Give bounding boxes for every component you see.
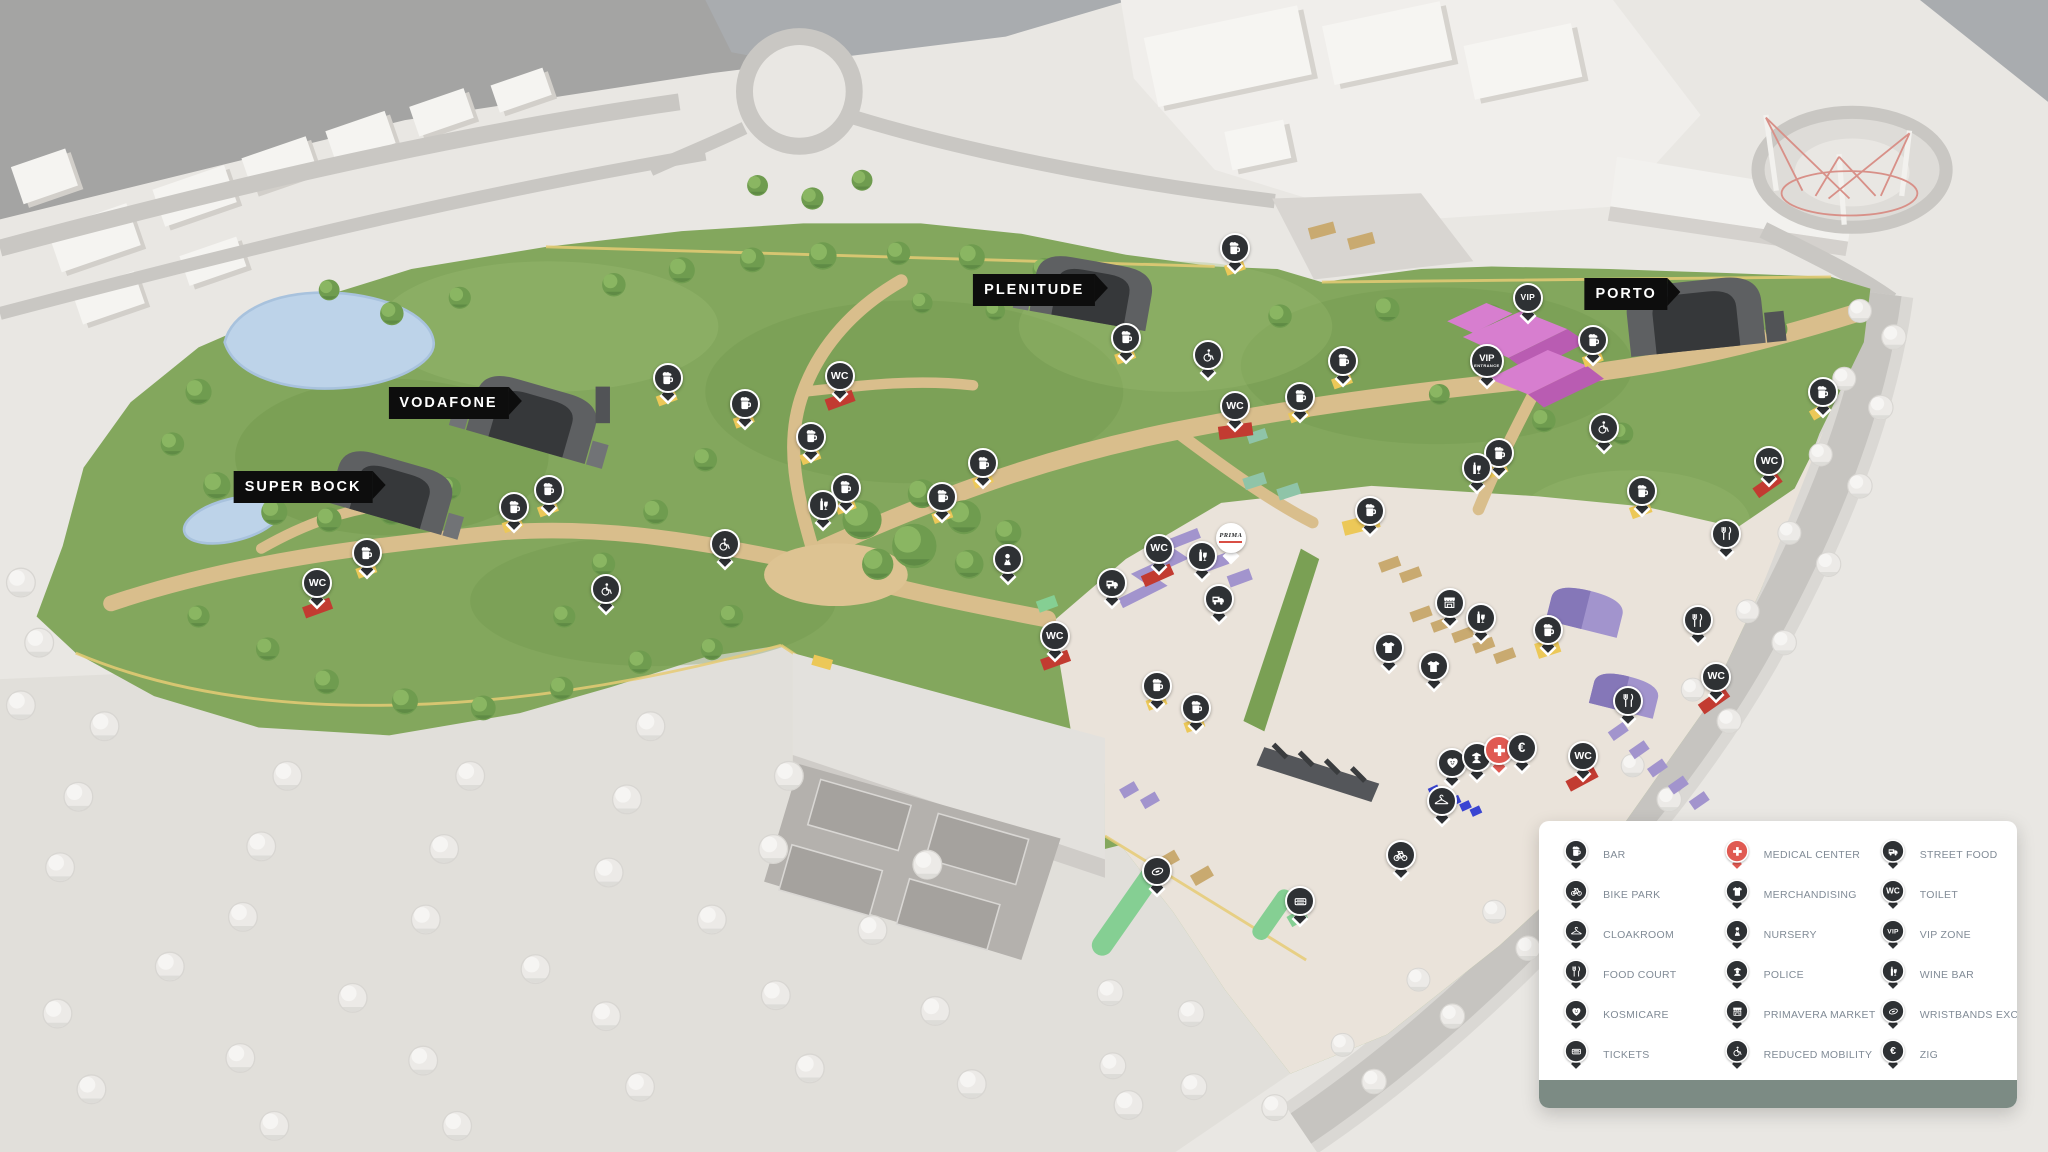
wristbands-exchange-icon xyxy=(1886,1004,1899,1017)
legend-item-label: KOSMICARE xyxy=(1603,1009,1669,1021)
legend-item-street-food: STREET FOOD xyxy=(1878,835,2007,875)
legend-item-bike-park: BIKE PARK xyxy=(1561,875,1722,915)
pin-toilet[interactable]: WC xyxy=(1701,662,1731,702)
legend-card: BARBIKE PARKCLOAKROOMFOOD COURTKOSMICARE… xyxy=(1539,821,2017,1108)
legend-item-wine-bar: WINE BAR xyxy=(1878,955,2007,995)
pin-primavera-market[interactable] xyxy=(1435,588,1465,628)
pin-text: € xyxy=(1518,741,1526,755)
legend-item-cloakroom: CLOAKROOM xyxy=(1561,915,1722,955)
pin-wine-bar[interactable] xyxy=(1187,541,1217,581)
wine-bar-icon xyxy=(815,496,832,513)
pin-food-court[interactable] xyxy=(1683,605,1713,645)
pin-reduced-mobility[interactable] xyxy=(710,529,740,569)
legend-pin-food-court xyxy=(1564,959,1587,990)
street-food-icon xyxy=(1886,844,1899,857)
pin-bar[interactable] xyxy=(968,448,998,488)
bike-park-icon xyxy=(1392,847,1409,864)
legend-item-toilet: WCTOILET xyxy=(1878,875,2007,915)
pin-text: VIP xyxy=(1887,928,1898,935)
stage-flag-super-bock: SUPER BOCK xyxy=(234,471,373,503)
pin-bar[interactable] xyxy=(653,363,683,403)
bar-icon xyxy=(540,481,557,498)
legend-item-tickets: TICKETS xyxy=(1561,1035,1722,1075)
pin-bar[interactable] xyxy=(352,538,382,578)
pin-bike-park[interactable] xyxy=(1386,840,1416,880)
pin-toilet[interactable]: WC xyxy=(825,361,855,401)
legend-item-label: WRISTBANDS EXCHANGE xyxy=(1920,1009,2017,1021)
bar-icon xyxy=(1491,445,1508,462)
reduced-mobility-icon xyxy=(1595,419,1612,436)
legend-pin-bike-park xyxy=(1564,879,1587,910)
wine-bar-icon xyxy=(1468,460,1485,477)
pin-text: PRIMA xyxy=(1219,533,1242,543)
pin-food-court[interactable] xyxy=(1613,686,1643,726)
bar-icon xyxy=(1814,384,1831,401)
wine-bar-icon xyxy=(1472,609,1489,626)
pin-merchandising[interactable] xyxy=(1419,651,1449,691)
pin-text: WC xyxy=(1707,671,1725,682)
legend-item-medical-center: MEDICAL CENTER xyxy=(1722,835,1878,875)
legend-item-wristbands-exchange: WRISTBANDS EXCHANGE xyxy=(1878,995,2007,1035)
wristbands-exchange-icon xyxy=(1149,863,1166,880)
kosmicare-icon xyxy=(1569,1004,1582,1017)
bar-icon xyxy=(1335,352,1352,369)
pin-zig[interactable]: € xyxy=(1507,733,1537,773)
bar-icon xyxy=(1226,240,1243,257)
pin-food-court[interactable] xyxy=(1711,519,1741,559)
legend-pin-vip: VIP xyxy=(1881,919,1904,950)
pin-bar[interactable] xyxy=(1533,615,1563,655)
pin-wristbands-exchange[interactable] xyxy=(1142,856,1172,896)
pin-street-food[interactable] xyxy=(1097,568,1127,608)
bar-icon xyxy=(934,488,951,505)
legend-pin-primavera-market xyxy=(1725,999,1748,1030)
legend-item-label: PRIMAVERA MARKET xyxy=(1764,1009,1876,1021)
pin-reduced-mobility[interactable] xyxy=(1193,340,1223,380)
legend-item-label: BAR xyxy=(1603,849,1626,861)
pin-bar[interactable] xyxy=(1142,671,1172,711)
legend-item-label: STREET FOOD xyxy=(1920,849,1998,861)
nursery-icon xyxy=(999,551,1016,568)
legend-pin-zig: € xyxy=(1881,1039,1904,1070)
legend-footer-bar xyxy=(1539,1080,2017,1108)
legend-item-food-court: FOOD COURT xyxy=(1561,955,1722,995)
cloakroom-icon xyxy=(1569,924,1582,937)
bar-icon xyxy=(1292,388,1309,405)
stage-flag-label: PLENITUDE xyxy=(984,282,1084,298)
legend-item-kosmicare: KOSMICARE xyxy=(1561,995,1722,1035)
pin-toilet[interactable]: WC xyxy=(1754,446,1784,486)
medical-center-icon xyxy=(1730,844,1743,857)
pin-toilet[interactable]: WC xyxy=(302,568,332,608)
pin-text: VIP xyxy=(1520,293,1535,302)
street-food-icon xyxy=(1210,591,1227,608)
pin-bar[interactable] xyxy=(1111,323,1141,363)
wine-bar-icon xyxy=(1886,964,1899,977)
legend-grid: BARBIKE PARKCLOAKROOMFOOD COURTKOSMICARE… xyxy=(1561,835,2007,1068)
police-icon xyxy=(1468,749,1485,766)
legend-item-label: CLOAKROOM xyxy=(1603,929,1674,941)
legend-item-label: REDUCED MOBILITY xyxy=(1764,1049,1873,1061)
pin-bar[interactable] xyxy=(1578,325,1608,365)
legend-item-label: TOILET xyxy=(1920,889,1958,901)
legend-item-label: NURSERY xyxy=(1764,929,1817,941)
stage-flag-plenitude: PLENITUDE xyxy=(973,274,1095,306)
legend-item-label: ZIG xyxy=(1920,1049,1938,1061)
bar-icon xyxy=(737,395,754,412)
pin-text: WC xyxy=(831,371,849,382)
pin-prima-sign[interactable]: PRIMA xyxy=(1216,523,1246,563)
food-court-icon xyxy=(1569,964,1582,977)
pin-text: WC xyxy=(1150,543,1168,554)
legend-pin-wine-bar xyxy=(1881,959,1904,990)
legend-item-police: POLICE xyxy=(1722,955,1878,995)
pin-text: WC xyxy=(1761,456,1779,467)
food-court-icon xyxy=(1689,612,1706,629)
pin-bar[interactable] xyxy=(1808,377,1838,417)
pin-text: ENTRANCE xyxy=(1474,364,1499,368)
pin-bar[interactable] xyxy=(1181,693,1211,733)
tickets-icon xyxy=(1569,1044,1582,1057)
pin-text: VIP xyxy=(1479,354,1494,364)
medical-center-icon xyxy=(1491,742,1508,759)
bar-icon xyxy=(1149,677,1166,694)
bar-icon xyxy=(1188,699,1205,716)
legend-pin-bar xyxy=(1564,839,1587,870)
pin-street-food[interactable] xyxy=(1204,584,1234,624)
pin-cloakroom[interactable] xyxy=(1427,786,1457,826)
pin-bar[interactable] xyxy=(796,422,826,462)
bar-icon xyxy=(975,455,992,472)
bike-park-icon xyxy=(1569,884,1582,897)
tickets-icon xyxy=(1292,893,1309,910)
primavera-market-icon xyxy=(1441,594,1458,611)
stage-flag-label: SUPER BOCK xyxy=(245,479,362,495)
pin-reduced-mobility[interactable] xyxy=(591,574,621,614)
legend-item-merchandising: MERCHANDISING xyxy=(1722,875,1878,915)
pin-text: WC xyxy=(1046,631,1064,642)
legend-item-nursery: NURSERY xyxy=(1722,915,1878,955)
legend-item-bar: BAR xyxy=(1561,835,1722,875)
legend-item-label: MERCHANDISING xyxy=(1764,889,1857,901)
pin-wine-bar[interactable] xyxy=(1466,603,1496,643)
legend-pin-toilet: WC xyxy=(1881,879,1904,910)
pin-toilet[interactable]: WC xyxy=(1220,391,1250,431)
legend-item-label: POLICE xyxy=(1764,969,1804,981)
bar-icon xyxy=(506,499,523,516)
food-court-icon xyxy=(1620,692,1637,709)
pin-toilet[interactable]: WC xyxy=(1040,621,1070,661)
primavera-market-icon xyxy=(1730,1004,1743,1017)
reduced-mobility-icon xyxy=(598,581,615,598)
bar-icon xyxy=(1118,329,1135,346)
pin-text: WC xyxy=(1886,887,1900,895)
pin-vip-entrance[interactable]: VIPENTRANCE xyxy=(1470,344,1504,388)
reduced-mobility-icon xyxy=(1200,347,1217,364)
legend-item-label: VIP ZONE xyxy=(1920,929,1971,941)
police-icon xyxy=(1730,964,1743,977)
bar-icon xyxy=(358,545,375,562)
legend-item-vip: VIPVIP ZONE xyxy=(1878,915,2007,955)
bar-icon xyxy=(803,428,820,445)
legend-pin-cloakroom xyxy=(1564,919,1587,950)
stage-flag-label: VODAFONE xyxy=(399,395,497,411)
pin-reduced-mobility[interactable] xyxy=(1589,413,1619,453)
bar-icon xyxy=(1634,483,1651,500)
legend-pin-merchandising xyxy=(1725,879,1748,910)
pin-bar[interactable] xyxy=(534,475,564,515)
pin-text: WC xyxy=(1574,751,1592,762)
festival-map: SUPER BOCKVODAFONEPLENITUDEPORTO WCWCWCW… xyxy=(0,0,2048,1152)
legend-pin-wristbands-exchange xyxy=(1881,999,1904,1030)
food-court-icon xyxy=(1718,525,1735,542)
kosmicare-icon xyxy=(1444,754,1461,771)
bar-icon xyxy=(1540,622,1557,639)
legend-item-reduced-mobility: REDUCED MOBILITY xyxy=(1722,1035,1878,1075)
pin-text: WC xyxy=(1226,401,1244,412)
legend-item-label: FOOD COURT xyxy=(1603,969,1676,981)
legend-pin-tickets xyxy=(1564,1039,1587,1070)
legend-item-label: TICKETS xyxy=(1603,1049,1649,1061)
pin-tickets[interactable] xyxy=(1285,886,1315,926)
pin-bar[interactable] xyxy=(730,389,760,429)
bar-icon xyxy=(1362,502,1379,519)
bar-icon xyxy=(837,479,854,496)
nursery-icon xyxy=(1730,924,1743,937)
bar-icon xyxy=(1569,844,1582,857)
pin-text: € xyxy=(1890,1046,1896,1057)
pin-vip[interactable]: VIP xyxy=(1513,283,1543,323)
pin-nursery[interactable] xyxy=(993,544,1023,584)
legend-pin-police xyxy=(1725,959,1748,990)
wine-bar-icon xyxy=(1194,547,1211,564)
legend-pin-reduced-mobility xyxy=(1725,1039,1748,1070)
legend-pin-kosmicare xyxy=(1564,999,1587,1030)
stage-flag-porto: PORTO xyxy=(1584,278,1667,310)
bar-icon xyxy=(659,370,676,387)
reduced-mobility-icon xyxy=(716,536,733,553)
pin-wine-bar[interactable] xyxy=(1462,453,1492,493)
reduced-mobility-icon xyxy=(1730,1044,1743,1057)
merchandising-icon xyxy=(1730,884,1743,897)
pin-bar[interactable] xyxy=(1328,346,1358,386)
legend-pin-nursery xyxy=(1725,919,1748,950)
bar-icon xyxy=(1585,332,1602,349)
legend-item-zig: €ZIG xyxy=(1878,1035,2007,1075)
pin-toilet[interactable]: WC xyxy=(1144,534,1174,574)
pin-bar[interactable] xyxy=(1355,496,1385,536)
pin-wine-bar[interactable] xyxy=(808,490,838,530)
stage-flag-label: PORTO xyxy=(1595,286,1656,302)
merchandising-icon xyxy=(1425,658,1442,675)
pin-bar[interactable] xyxy=(499,492,529,532)
pin-toilet[interactable]: WC xyxy=(1568,741,1598,781)
cloakroom-icon xyxy=(1433,792,1450,809)
legend-item-label: WINE BAR xyxy=(1920,969,1974,981)
pin-merchandising[interactable] xyxy=(1374,633,1404,673)
pin-bar[interactable] xyxy=(1627,476,1657,516)
stage-flag-vodafone: VODAFONE xyxy=(388,387,508,419)
pin-bar[interactable] xyxy=(927,482,957,522)
merchandising-icon xyxy=(1380,639,1397,656)
pin-bar[interactable] xyxy=(1220,233,1250,273)
legend-pin-medical-center xyxy=(1725,839,1748,870)
pin-text: WC xyxy=(309,578,327,589)
legend-item-label: MEDICAL CENTER xyxy=(1764,849,1861,861)
legend-item-primavera-market: PRIMAVERA MARKET xyxy=(1722,995,1878,1035)
pin-bar[interactable] xyxy=(1285,382,1315,422)
legend-pin-street-food xyxy=(1881,839,1904,870)
street-food-icon xyxy=(1104,575,1121,592)
legend-item-label: BIKE PARK xyxy=(1603,889,1660,901)
